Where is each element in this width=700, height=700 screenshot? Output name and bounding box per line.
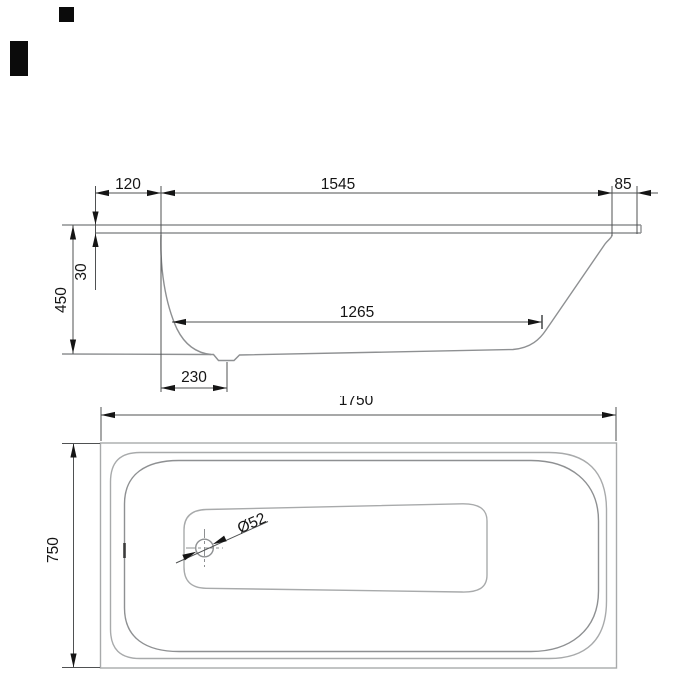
dim-label-750: 750 [45,537,62,563]
arrowhead [161,385,175,391]
dim-label-1545: 1545 [321,176,355,193]
arrowhead [70,340,76,354]
arrowhead [213,385,227,391]
dim-label-drain-diameter: Ø52 [235,510,269,537]
dim-label-450: 450 [53,287,70,313]
plan-view: Ø52 1750 750 [45,392,617,668]
dim-label-120: 120 [115,176,141,193]
dim-label-1265: 1265 [340,304,374,321]
arrowhead [70,444,76,458]
arrowhead [101,412,115,418]
arrowhead [161,190,175,196]
arrowhead [602,412,616,418]
side-bottom-reference-line [62,354,211,355]
arrowhead [147,190,161,196]
arrowhead [70,654,76,668]
side-tub-profile [161,235,612,361]
arrowhead [92,212,98,225]
technical-drawing-page: 120 1545 85 30 450 1265 230 [0,0,700,700]
plan-tub-opening-outline [125,461,599,652]
dim-label-30: 30 [73,263,90,281]
bathtub-technical-drawing: 120 1545 85 30 450 1265 230 [0,0,700,700]
dim-label-85: 85 [614,176,631,193]
arrowhead [92,234,98,248]
side-view: 120 1545 85 30 450 1265 230 [53,176,658,392]
arrowhead [172,319,186,325]
arrowhead [528,319,542,325]
arrowhead [95,190,109,196]
dim-label-1750: 1750 [339,392,374,409]
dim-label-230: 230 [181,369,207,386]
artifact-mark-1 [59,7,74,22]
plan-inner-bottom-outline [184,504,487,592]
arrowhead [598,190,612,196]
arrowhead [70,226,76,240]
plan-outer-rect [101,443,617,668]
artifact-mark-2 [10,41,28,76]
arrowhead [637,190,651,196]
